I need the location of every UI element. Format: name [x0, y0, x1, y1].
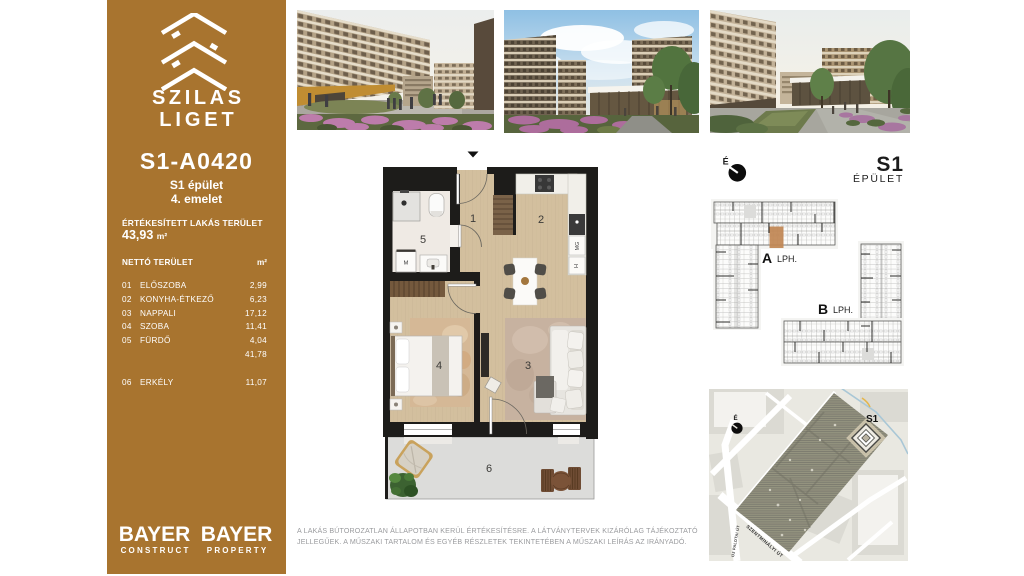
svg-text:3: 3	[525, 360, 531, 372]
svg-text:LPH.: LPH.	[777, 254, 797, 264]
svg-text:2: 2	[538, 214, 544, 226]
svg-text:4: 4	[436, 360, 442, 372]
svg-text:MG: MG	[575, 242, 581, 251]
svg-text:5: 5	[420, 234, 426, 246]
svg-text:S1: S1	[866, 414, 879, 425]
svg-text:6: 6	[486, 463, 492, 475]
svg-text:LPH.: LPH.	[833, 305, 853, 315]
svg-text:É: É	[723, 157, 729, 167]
svg-text:M: M	[404, 261, 409, 267]
svg-text:1: 1	[470, 213, 476, 225]
svg-text:H: H	[574, 264, 580, 268]
svg-text:A: A	[762, 250, 772, 266]
svg-text:É: É	[734, 414, 738, 422]
svg-text:B: B	[818, 301, 828, 317]
